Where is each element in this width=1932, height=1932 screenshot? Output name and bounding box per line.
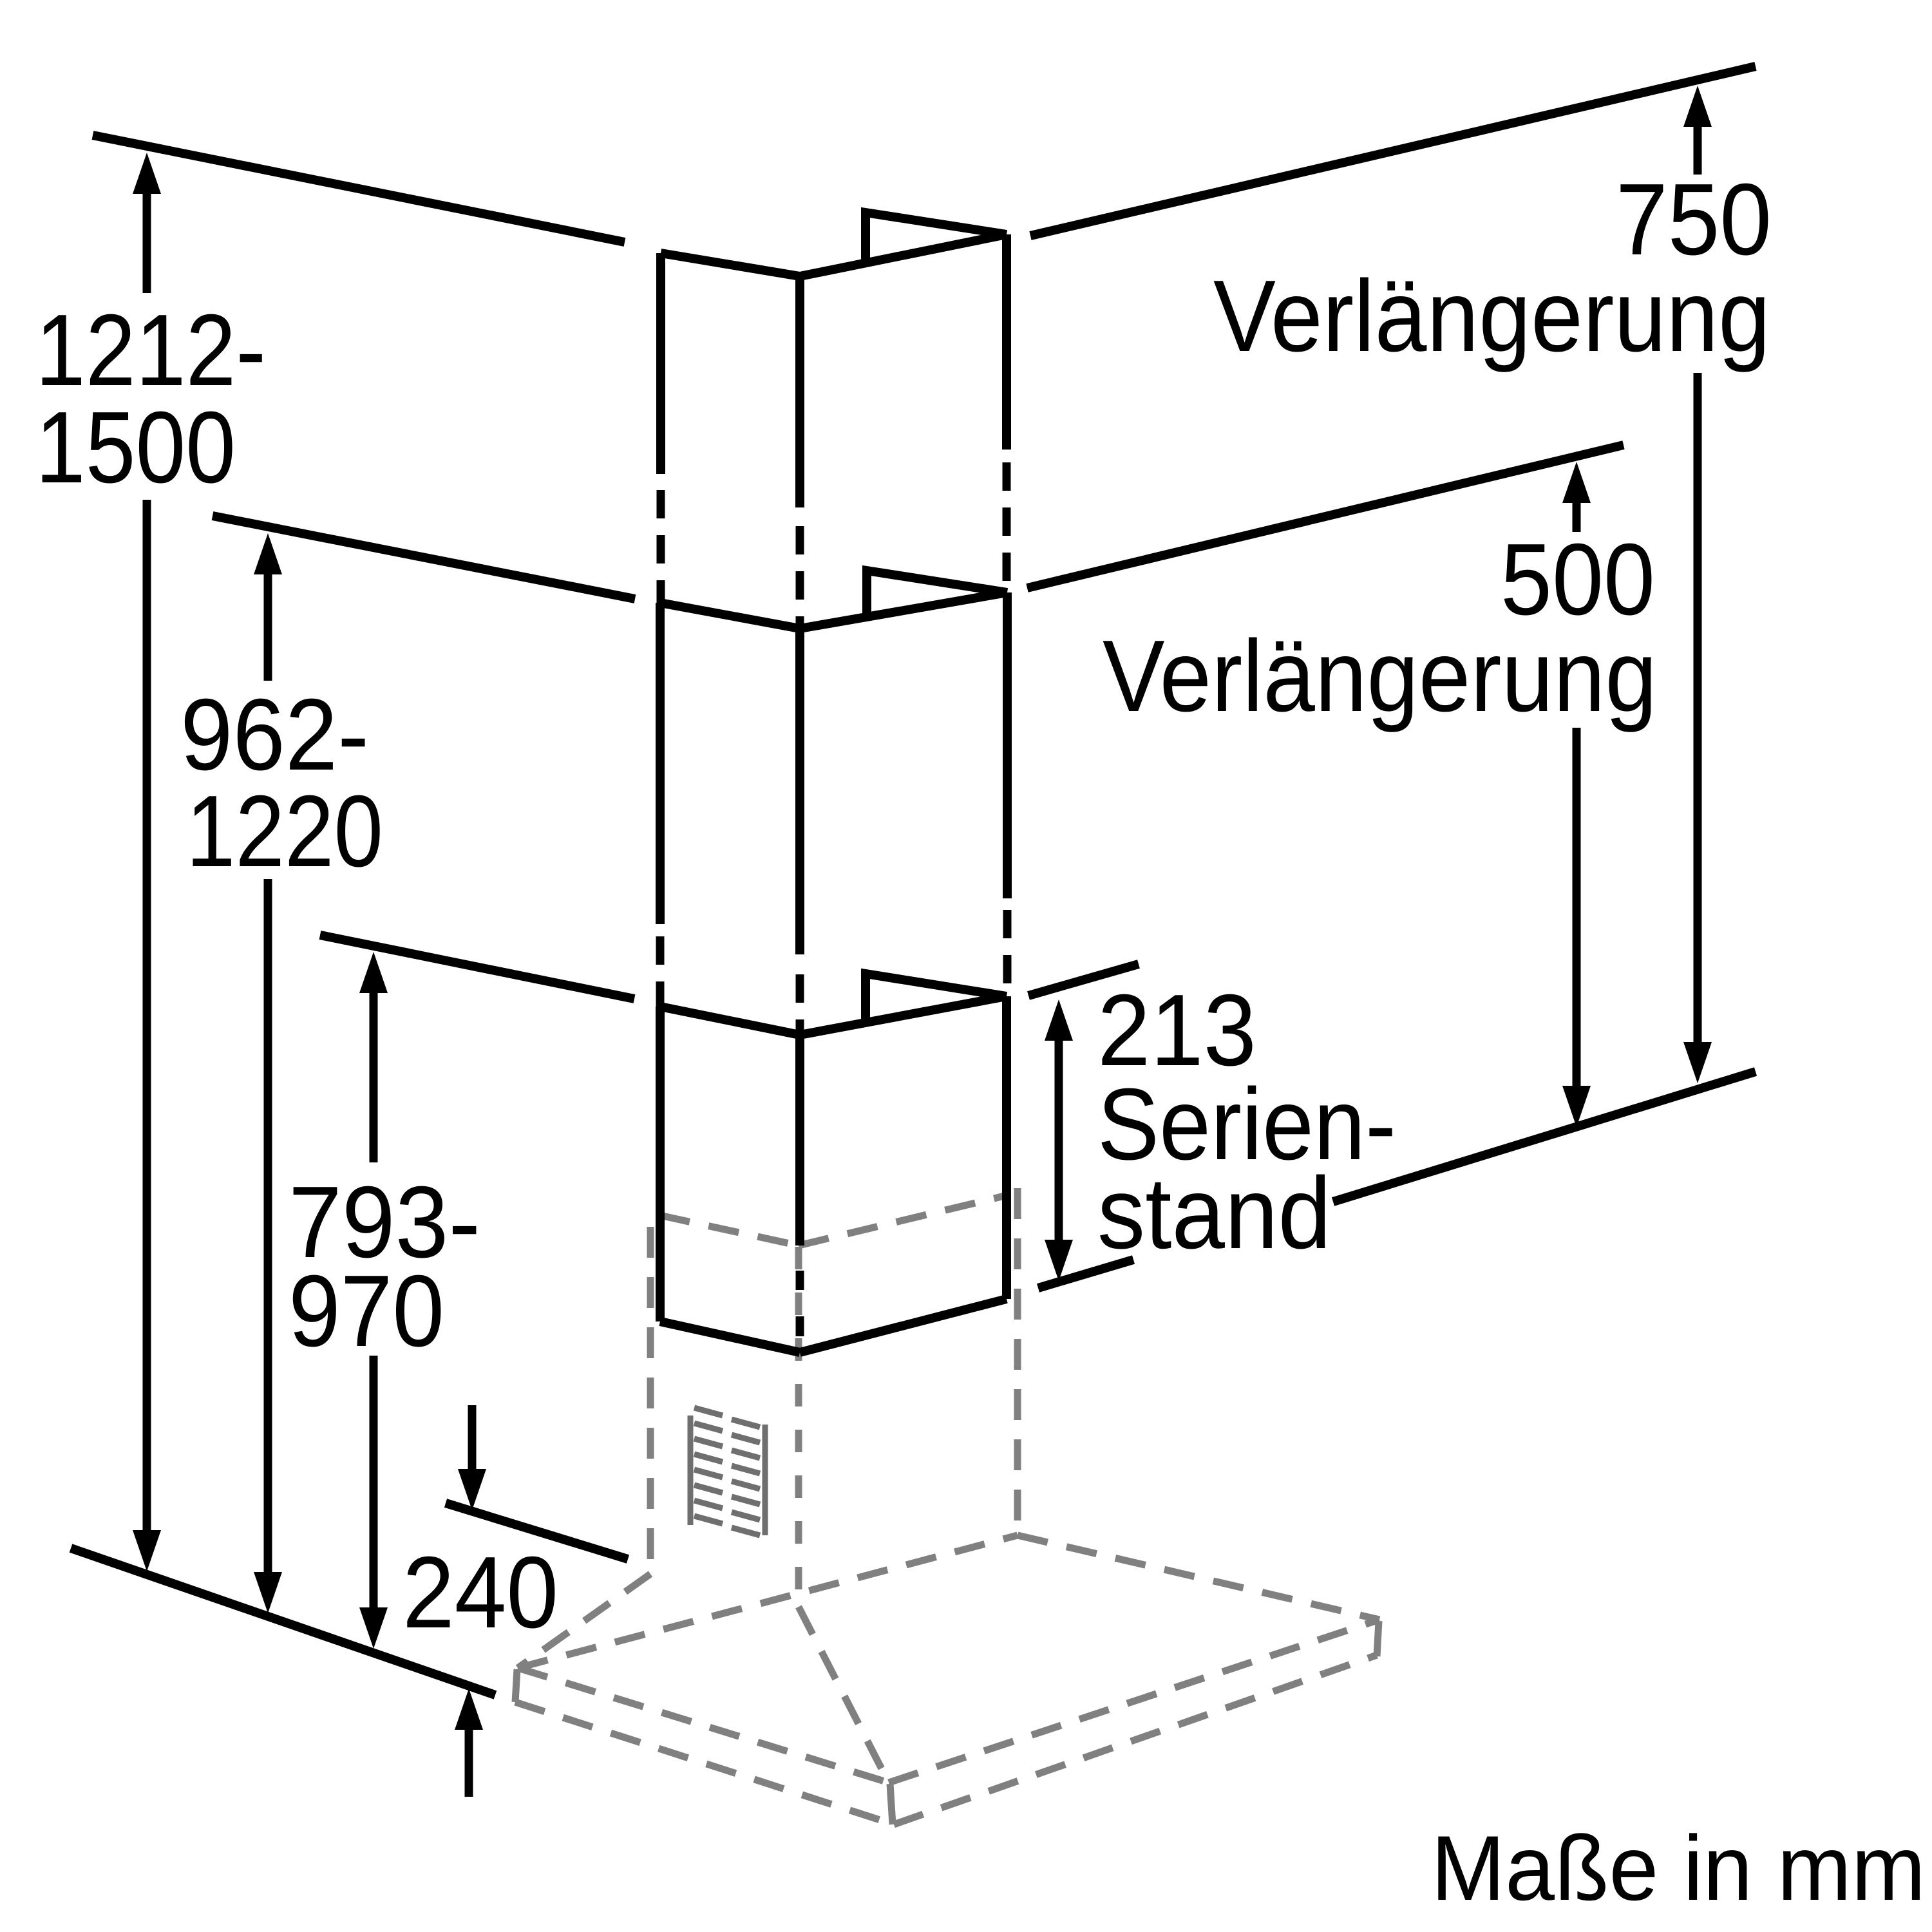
- svg-text:970: 970: [289, 1255, 444, 1368]
- svg-text:1220: 1220: [186, 775, 383, 888]
- svg-text:1500: 1500: [35, 391, 236, 504]
- svg-text:stand: stand: [1097, 1157, 1331, 1270]
- svg-text:Maße in mm: Maße in mm: [1431, 1817, 1926, 1920]
- svg-text:Verlängerung: Verlängerung: [1213, 260, 1770, 373]
- svg-text:Verlängerung: Verlängerung: [1103, 620, 1657, 733]
- svg-text:1212-: 1212-: [35, 294, 266, 407]
- svg-text:240: 240: [402, 1536, 558, 1649]
